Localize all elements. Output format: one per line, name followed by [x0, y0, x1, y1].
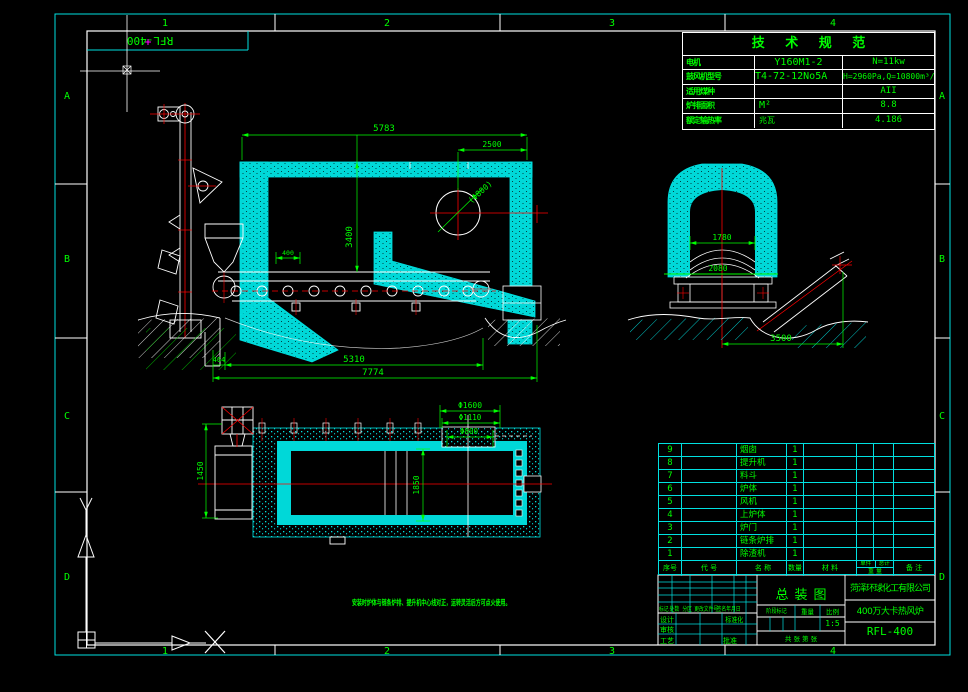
spec-value: AII: [843, 85, 934, 98]
spec-value: T4-72-12No5A: [754, 70, 843, 83]
bom-row: 5风机1: [659, 496, 934, 509]
bom-row: 4上炉体1: [659, 509, 934, 522]
spec-label: 电机: [683, 56, 754, 69]
front-right-wall: [510, 162, 532, 286]
front-top-slab: [240, 162, 532, 177]
cad-drawing-sheet: 1 2 3 4 1 2 3 4 A B C D A B C D: [0, 0, 968, 692]
dim-plan-inner: 1850: [412, 475, 421, 494]
bom-header: 材 料: [803, 561, 856, 576]
tech-spec-row: 电机 Y160M1-2 N=11kw: [683, 56, 934, 70]
scale-label: 比例: [820, 606, 845, 616]
weight-label: 重量: [795, 606, 820, 616]
spec-value: N=11kw: [843, 56, 934, 69]
tech-spec-table: 技 术 规 范 电机 Y160M1-2 N=11kw 鼓风机型号 T4-72-1…: [682, 32, 935, 130]
tech-spec-row: 鼓风机型号 T4-72-12No5A H=2960Pa,Q=10800m³/h: [683, 70, 934, 84]
bom-header: 序号: [659, 561, 681, 576]
tech-spec-row: 适用煤种 AII: [683, 85, 934, 99]
bom-row: 7料斗1: [659, 470, 934, 483]
zone-letter: A: [939, 91, 945, 102]
spec-value: 4.186: [843, 114, 934, 128]
dim-front-overall-top: 5783: [373, 124, 395, 134]
sheet-info: 共 张 第 张: [757, 633, 845, 643]
tech-spec-row: 炉排面积 M² 8.8: [683, 99, 934, 113]
front-view: 5783 2500 3400 (Φ800) 464 5310 7774 400: [138, 103, 566, 382]
spec-value: M²: [754, 99, 843, 112]
zone-number: 2: [384, 646, 390, 657]
zone-number: 4: [830, 646, 836, 657]
standard-label: 标准化: [725, 615, 752, 625]
zone-letter: C: [64, 411, 70, 422]
zone-letter: B: [64, 254, 70, 265]
zone-number: 3: [609, 18, 615, 29]
bom-row: 8提升机1: [659, 457, 934, 470]
bom-header: 备 注: [893, 561, 934, 576]
ucs-axis-icon: [78, 498, 225, 653]
design-label: 设计: [660, 615, 676, 625]
tech-spec-title: 技 术 规 范: [683, 33, 934, 56]
dim-plan-d2: Φ1110: [459, 413, 482, 422]
spec-label: 鼓风机型号: [683, 70, 754, 83]
technical-note: 安装时炉体与链条炉排、提升机中心线对正，运转灵活后方可点火使用。: [352, 597, 504, 608]
bom-row: 9烟囱1: [659, 444, 934, 457]
dim-front-height: 3400: [345, 226, 355, 248]
product-name: 400万大卡热风炉: [845, 604, 935, 617]
zone-letter: B: [939, 254, 945, 265]
dim-front-left-small: 464: [213, 356, 226, 364]
corner-drawing-number: RFL-400: [127, 34, 173, 47]
bucket-elevator: [150, 103, 222, 338]
process-label: 工艺: [660, 636, 676, 646]
dim-front-grate: 5310: [343, 355, 365, 365]
spec-value: H=2960Pa,Q=10800m³/h: [843, 70, 934, 83]
zone-letter: C: [939, 411, 945, 422]
zone-number: 4: [830, 18, 836, 29]
zone-number: 1: [162, 18, 168, 29]
bom-table: 9烟囱1 8提升机1 7料斗1 6炉体1 5风机1 4上炉体1 3炉门1 2链条…: [658, 443, 935, 575]
drawing-number: RFL-400: [845, 625, 935, 638]
spec-value: 兆瓦: [754, 114, 843, 128]
side-view: 1780 2080 3500: [628, 164, 868, 348]
dim-front-flue: (Φ800): [467, 179, 495, 205]
dim-side-inner-width: 1780: [712, 233, 731, 242]
corner-label-box: RFL-400: [80, 15, 248, 112]
bom-header-weight-group: 单件总计 重 量: [856, 561, 893, 576]
spec-label: 适用煤种: [683, 85, 754, 98]
dim-front-top-right: 2500: [482, 140, 501, 149]
zone-letter: A: [64, 91, 70, 102]
spec-value: 8.8: [843, 99, 934, 112]
zone-number: 1: [162, 646, 168, 657]
zone-letter: D: [939, 572, 945, 583]
drawing-title: 总装图: [757, 584, 845, 603]
bom-row: 2链条炉排1: [659, 535, 934, 548]
bom-header: 代 号: [681, 561, 736, 576]
approve-label: 批准: [723, 636, 755, 646]
front-left-wall: [240, 162, 268, 315]
plan-view: Φ1600 Φ1110 Φ800 1450 1850: [196, 401, 552, 544]
spec-value: [754, 85, 843, 98]
zone-letter: D: [64, 572, 70, 583]
bom-header: 数量: [786, 561, 803, 576]
bom-row: 3炉门1: [659, 522, 934, 535]
bom-row: 6炉体1: [659, 483, 934, 496]
bom-header-row: 序号 代 号 名 称 数量 材 料 单件总计 重 量 备 注: [659, 561, 934, 576]
bom-row: 1除渣机1: [659, 548, 934, 561]
tech-spec-row: 额定输热率 兆瓦 4.186: [683, 114, 934, 128]
revision-header-row: 标记 处数 分区 更改文件号 签名 年月日: [659, 604, 737, 613]
dim-plan-left: 1450: [196, 461, 205, 480]
dim-front-overall-bottom: 7774: [362, 368, 384, 378]
dim-plan-d1: Φ1600: [458, 401, 482, 410]
dim-side-bottom: 3500: [770, 334, 792, 344]
scale-value: 1:5: [820, 619, 845, 628]
spec-label: 额定输热率: [683, 114, 754, 128]
dim-front-sprocket: 400: [282, 249, 294, 257]
dim-plan-d3: Φ800: [460, 427, 479, 436]
stage-label: 阶段标记: [761, 606, 792, 615]
title-block: 菏泽环球化工有限公司 400万大卡热风炉 RFL-400 总装图 阶段标记 重量…: [658, 575, 935, 645]
spec-label: 炉排面积: [683, 99, 754, 112]
check-label: 审核: [660, 625, 676, 635]
coal-hopper: [205, 224, 243, 272]
side-ground: [628, 315, 868, 349]
spec-value: Y160M1-2: [754, 56, 843, 69]
zone-number: 2: [384, 18, 390, 29]
zone-number: 3: [609, 646, 615, 657]
dim-side-inner-height: 2080: [708, 264, 727, 273]
company-name: 菏泽环球化工有限公司: [845, 581, 935, 594]
bom-header: 名 称: [736, 561, 786, 576]
